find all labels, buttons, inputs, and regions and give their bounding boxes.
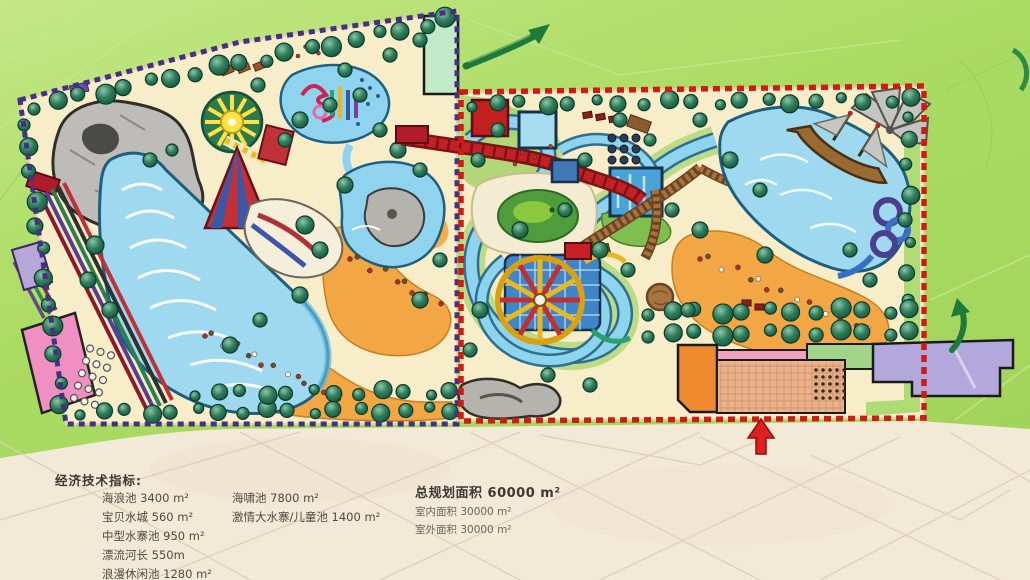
rock-feature (459, 379, 561, 419)
site-plan-canvas (0, 0, 1030, 580)
umbrella-tables (608, 134, 640, 164)
foreground-paper (0, 421, 1030, 580)
east-park-parcel (396, 84, 1013, 421)
waterpark-master-plan: 经济技术指标: 海浪池 3400 m² 宝贝水城 560 m² 中型水寨池 95… (0, 0, 1030, 580)
